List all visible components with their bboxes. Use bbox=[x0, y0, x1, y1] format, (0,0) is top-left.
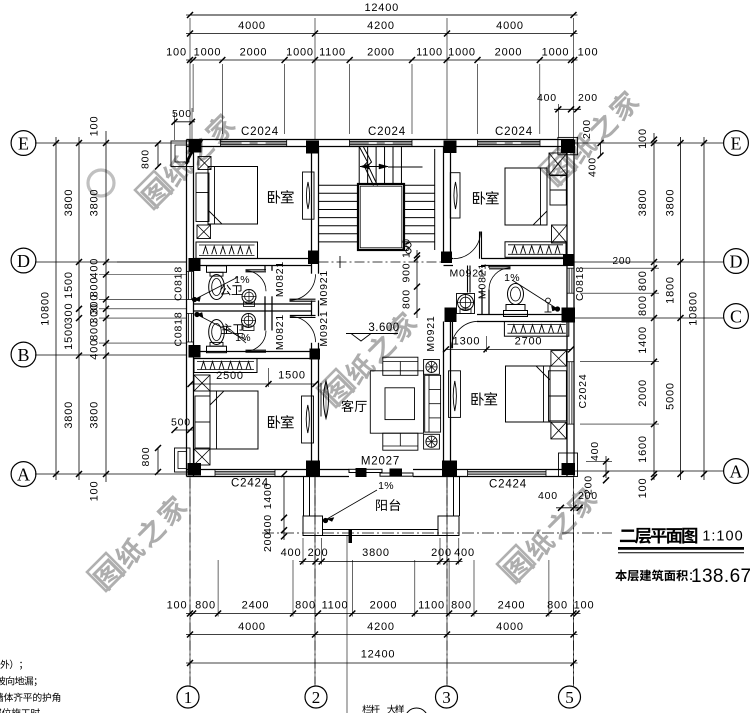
svg-text:M0921: M0921 bbox=[318, 270, 330, 306]
svg-text:5: 5 bbox=[565, 688, 574, 707]
svg-text:800: 800 bbox=[547, 600, 568, 612]
svg-text:1500: 1500 bbox=[63, 271, 75, 299]
svg-text:1%: 1% bbox=[504, 272, 520, 284]
svg-text:100: 100 bbox=[166, 47, 187, 59]
svg-text:2700: 2700 bbox=[515, 336, 543, 348]
svg-text:2: 2 bbox=[312, 688, 321, 707]
svg-text:400: 400 bbox=[454, 547, 475, 559]
svg-text:500: 500 bbox=[172, 108, 192, 120]
svg-text:M0921: M0921 bbox=[318, 310, 330, 346]
svg-text:D: D bbox=[17, 251, 30, 271]
svg-text:5000: 5000 bbox=[665, 382, 677, 410]
svg-text:2400: 2400 bbox=[498, 600, 526, 612]
svg-text:200: 200 bbox=[578, 92, 598, 104]
svg-text:138.67: 138.67 bbox=[691, 566, 750, 587]
svg-text:M0821: M0821 bbox=[274, 314, 286, 350]
svg-text:2000: 2000 bbox=[367, 47, 395, 59]
svg-text:400: 400 bbox=[587, 157, 599, 177]
svg-text:800: 800 bbox=[451, 600, 472, 612]
svg-text:A: A bbox=[17, 464, 30, 484]
svg-text:3800: 3800 bbox=[89, 189, 101, 217]
svg-text:1000: 1000 bbox=[542, 47, 570, 59]
svg-text:1%: 1% bbox=[234, 274, 250, 286]
svg-text:100: 100 bbox=[578, 47, 599, 59]
svg-text:M0821: M0821 bbox=[274, 261, 286, 297]
svg-text:C2424: C2424 bbox=[489, 479, 527, 491]
svg-text:800: 800 bbox=[401, 289, 413, 309]
svg-text:10800: 10800 bbox=[688, 291, 700, 326]
svg-text:1100: 1100 bbox=[418, 600, 445, 612]
svg-text:E: E bbox=[18, 133, 29, 153]
svg-text:B: B bbox=[17, 345, 29, 365]
svg-text:800: 800 bbox=[195, 600, 216, 612]
svg-text:200: 200 bbox=[612, 256, 631, 267]
svg-text:A: A bbox=[730, 461, 743, 481]
svg-text:1500: 1500 bbox=[278, 370, 306, 382]
svg-text:3.600: 3.600 bbox=[368, 322, 399, 334]
svg-text:800: 800 bbox=[637, 295, 649, 316]
svg-text:4000: 4000 bbox=[238, 621, 266, 633]
svg-text:2500: 2500 bbox=[216, 370, 244, 382]
svg-text:C0818: C0818 bbox=[173, 312, 185, 347]
svg-text:800: 800 bbox=[637, 270, 649, 291]
svg-text:400: 400 bbox=[89, 258, 101, 279]
svg-text:3800: 3800 bbox=[89, 401, 101, 429]
svg-text:3800: 3800 bbox=[63, 401, 75, 429]
svg-text:M2027: M2027 bbox=[361, 456, 400, 468]
svg-text:1100: 1100 bbox=[319, 47, 346, 59]
svg-text:100: 100 bbox=[167, 600, 188, 612]
svg-text:2400: 2400 bbox=[242, 600, 270, 612]
svg-text:1000: 1000 bbox=[194, 47, 222, 59]
svg-text:C2024: C2024 bbox=[495, 126, 533, 138]
svg-text:4200: 4200 bbox=[367, 20, 395, 32]
svg-text:400: 400 bbox=[589, 441, 601, 461]
svg-text:100: 100 bbox=[637, 128, 649, 149]
svg-text:E: E bbox=[731, 133, 742, 153]
svg-text:3800: 3800 bbox=[665, 189, 677, 217]
svg-text:M0921: M0921 bbox=[449, 268, 485, 280]
svg-text:C0818: C0818 bbox=[574, 266, 586, 301]
svg-text:C2024: C2024 bbox=[241, 126, 279, 138]
svg-text:C2424: C2424 bbox=[231, 478, 269, 490]
svg-text:100: 100 bbox=[574, 600, 595, 612]
svg-text:3800: 3800 bbox=[362, 547, 390, 559]
svg-text:3800: 3800 bbox=[63, 189, 75, 217]
svg-text:800: 800 bbox=[140, 447, 152, 467]
svg-text:1%: 1% bbox=[378, 480, 394, 492]
svg-text:C: C bbox=[730, 306, 742, 326]
svg-text:M0921: M0921 bbox=[425, 315, 437, 351]
svg-text:C2024: C2024 bbox=[577, 374, 589, 409]
svg-text:200: 200 bbox=[431, 547, 452, 559]
svg-text:400: 400 bbox=[281, 547, 302, 559]
svg-text:400: 400 bbox=[538, 490, 558, 502]
svg-text:3800: 3800 bbox=[637, 189, 649, 217]
svg-text:4000: 4000 bbox=[496, 621, 524, 633]
svg-text:2000: 2000 bbox=[637, 379, 649, 407]
svg-text:2000: 2000 bbox=[495, 47, 523, 59]
svg-text:800: 800 bbox=[89, 320, 101, 341]
svg-text:1000: 1000 bbox=[286, 47, 314, 59]
svg-text:100: 100 bbox=[401, 238, 413, 258]
svg-text:200: 200 bbox=[262, 532, 274, 552]
svg-text:2000: 2000 bbox=[240, 47, 268, 59]
svg-text:100: 100 bbox=[637, 478, 649, 499]
svg-text:1400: 1400 bbox=[637, 326, 649, 354]
svg-text:4000: 4000 bbox=[238, 20, 266, 32]
svg-text:4000: 4000 bbox=[496, 20, 524, 32]
svg-text:400: 400 bbox=[262, 514, 274, 534]
svg-text:800: 800 bbox=[295, 600, 316, 612]
svg-text:900: 900 bbox=[401, 263, 413, 283]
svg-text:200: 200 bbox=[581, 119, 593, 139]
svg-text:1500: 1500 bbox=[63, 322, 75, 350]
svg-text:300: 300 bbox=[63, 303, 75, 324]
svg-text:1100: 1100 bbox=[416, 47, 443, 59]
svg-text:D: D bbox=[730, 251, 743, 271]
svg-text:12400: 12400 bbox=[361, 649, 396, 661]
svg-text:1600: 1600 bbox=[637, 435, 649, 463]
svg-text:C0818: C0818 bbox=[173, 266, 185, 301]
svg-text:1000: 1000 bbox=[448, 47, 476, 59]
svg-text:1800: 1800 bbox=[665, 276, 677, 304]
svg-text:4200: 4200 bbox=[367, 621, 395, 633]
svg-text:1100: 1100 bbox=[322, 600, 349, 612]
svg-text:500: 500 bbox=[171, 417, 191, 429]
svg-text:C2024: C2024 bbox=[368, 126, 406, 138]
svg-text:12400: 12400 bbox=[364, 2, 399, 14]
svg-text:2000: 2000 bbox=[370, 600, 398, 612]
svg-text:1: 1 bbox=[184, 688, 193, 707]
svg-text:100: 100 bbox=[89, 116, 101, 137]
svg-text:200: 200 bbox=[308, 547, 329, 559]
svg-text:100: 100 bbox=[89, 481, 101, 502]
svg-text:1:100: 1:100 bbox=[702, 529, 743, 545]
svg-text:1300: 1300 bbox=[453, 336, 481, 348]
svg-text:10800: 10800 bbox=[40, 291, 52, 326]
svg-text:400: 400 bbox=[89, 339, 101, 360]
svg-text:200: 200 bbox=[583, 475, 595, 495]
svg-text:400: 400 bbox=[537, 92, 557, 104]
svg-text:800: 800 bbox=[140, 149, 152, 169]
svg-text:3: 3 bbox=[442, 688, 451, 707]
